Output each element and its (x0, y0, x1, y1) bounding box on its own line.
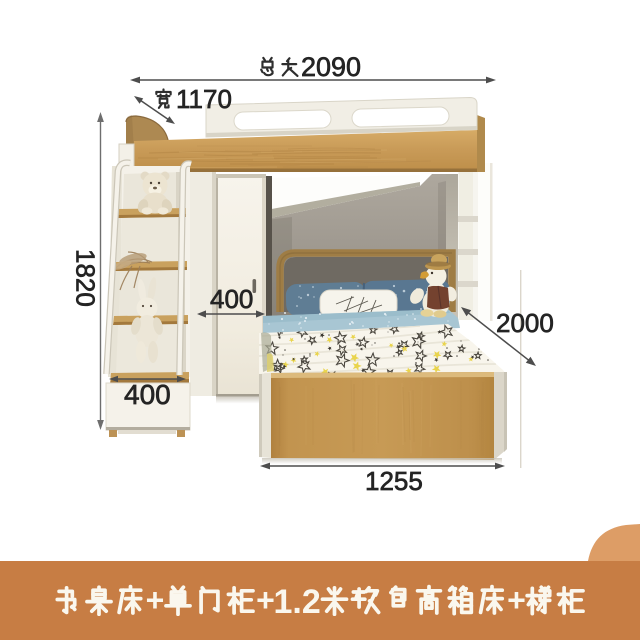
svg-text:2000: 2000 (496, 308, 554, 338)
svg-text:1255: 1255 (365, 466, 423, 496)
svg-text:+: + (256, 582, 275, 618)
svg-text:400: 400 (210, 284, 253, 314)
svg-text:1820: 1820 (71, 249, 101, 307)
svg-text:1.2: 1.2 (274, 583, 321, 621)
svg-text:1170: 1170 (176, 84, 232, 114)
svg-text:2090: 2090 (301, 52, 361, 82)
svg-text:+: + (507, 582, 526, 618)
svg-text:+: + (146, 582, 165, 618)
svg-text:400: 400 (124, 379, 171, 410)
